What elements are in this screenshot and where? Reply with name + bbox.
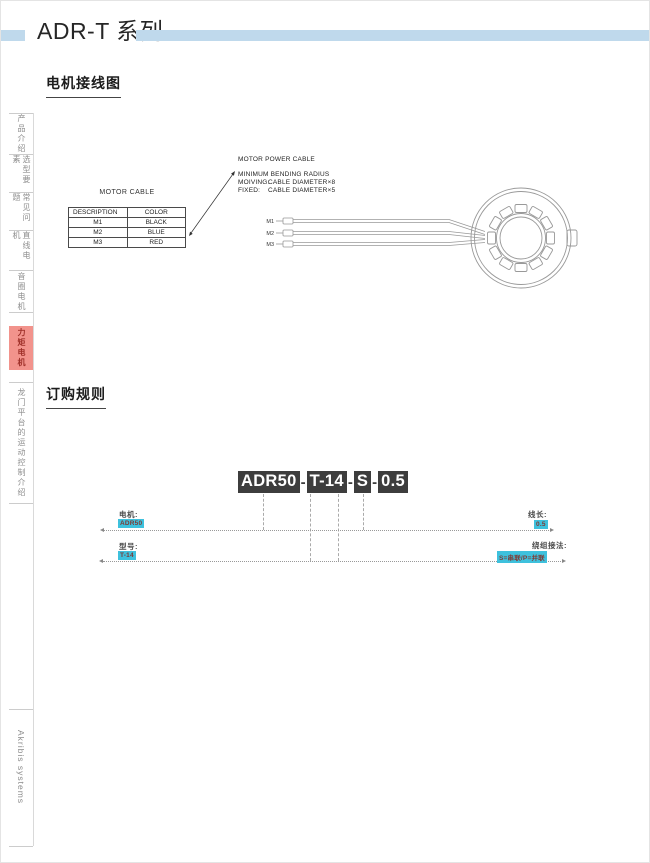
motor-cables [276,218,485,247]
cable-label-m2: M2 [266,231,274,237]
wiring-diagram: M1 M2 M3 [181,151,621,311]
callout-winding-value-badge: S=串联/P=并联 [497,551,547,563]
table-row: M3 RED [69,238,186,248]
sidebar-tab-product-intro[interactable]: 产品介绍 [9,113,33,154]
motor-notch [567,230,577,246]
sidebar-tab-gantry-control[interactable]: 龙门平台的运动控制介绍 [9,382,33,504]
table-header-row: DESCRIPTION COLOR [69,208,186,218]
callout-motor-value-badge: ADR50 [118,519,144,528]
motor-cable-table: DESCRIPTION COLOR M1 BLACK M2 BLUE M3 RE… [68,207,186,248]
col-header-description: DESCRIPTION [69,208,128,218]
sidebar-tab-label-active: 力矩电机 [9,326,33,370]
dotted-line-arrow-right [562,559,566,563]
sidebar-tab-label: 直线电机 [11,231,31,270]
code-separator: - [301,474,306,491]
table-row: M1 BLACK [69,218,186,228]
sidebar-separator [9,846,33,847]
sidebar-tabs: 产品介绍 选型要素 常见问题 直线电机 音圈电机 力矩电机 龙门平台的运动控制介… [9,113,33,504]
code-separator: - [372,474,377,491]
stator-segments [488,205,555,272]
code-segment-motor: ADR50 [238,471,300,493]
cable-label-m1: M1 [266,219,274,225]
code-segment-length: 0.5 [378,471,408,493]
sidebar-tab-selection[interactable]: 选型要素 [9,154,33,192]
callout-winding-label: 绕组接法: [532,540,567,551]
code-callout-connector [338,494,339,561]
header-accent-bar-right [136,30,649,41]
code-callout-connector [310,494,311,561]
table-to-note-arrow [189,171,235,236]
code-segment-model: T-14 [307,471,347,493]
code-callout-connector [363,494,364,530]
callout-cable-length-value-badge: 0.5 [534,520,548,529]
torque-motor-drawing [471,188,577,288]
header-accent-bar-left [1,30,25,41]
catalog-page: ADR-T 系列 产品介绍 选型要素 常见问题 直线电机 音圈电机 力矩电机 龙… [0,0,650,863]
sidebar-tab-label: 龙门平台的运动控制介绍 [16,388,26,498]
sidebar-tab-linear-motor[interactable]: 直线电机 [9,230,33,270]
cable-m2 [276,230,485,239]
cell-description: M3 [69,238,128,248]
sidebar-tab-label: 常见问题 [11,193,31,230]
sidebar-tab-torque-motor-active[interactable]: 力矩电机 [9,312,33,382]
callout-model-value-badge: T-14 [118,551,136,560]
table-row: M2 BLUE [69,228,186,238]
motor-cable-table-title: MOTOR CABLE [68,189,186,196]
code-separator: - [348,474,353,491]
ordering-code: ADR50 - T-14 - S - 0.5 [238,471,408,493]
callout-dotted-line-row2 [103,561,561,562]
cable-label-m3: M3 [266,242,274,248]
ordering-section-heading: 订购规则 [46,384,106,409]
code-segment-winding: S [354,471,371,493]
dotted-line-arrow-right [550,528,554,532]
sidebar-vertical-rule [33,113,34,846]
callout-dotted-line-row1 [104,530,549,531]
dotted-line-arrow-left [100,528,104,532]
sidebar-tab-voice-coil-motor[interactable]: 音圈电机 [9,270,33,312]
wiring-section-heading: 电机接线图 [46,73,121,98]
sidebar-tab-label: 产品介绍 [16,114,26,154]
cable-m3 [276,240,485,248]
cell-color: BLACK [127,218,186,228]
sidebar-tab-label: 音圈电机 [16,272,26,312]
cell-color: BLUE [127,228,186,238]
sidebar-tab-label: 选型要素 [11,155,31,192]
col-header-color: COLOR [127,208,186,218]
cell-color: RED [127,238,186,248]
code-callout-connector [263,494,264,530]
sidebar-tab-faq[interactable]: 常见问题 [9,192,33,230]
dotted-line-arrow-left [99,559,103,563]
cell-description: M1 [69,218,128,228]
cell-description: M2 [69,228,128,238]
callout-cable-length-label: 线长: [528,509,547,520]
sidebar-separator [9,709,33,710]
brand-vertical-text: Akribis systems [16,730,26,804]
